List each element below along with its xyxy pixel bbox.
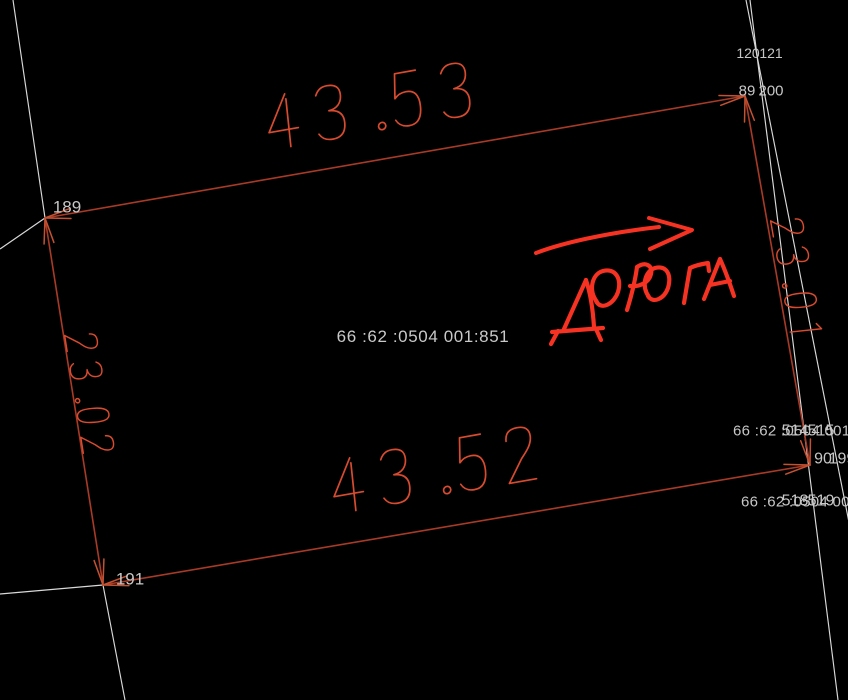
cadastral-quarter-line [750, 0, 838, 700]
point-number-label: 519 [808, 493, 835, 510]
point-number-label: 121 [759, 45, 783, 61]
point-number-label: 200 [758, 83, 783, 100]
cadastral-map-viewport: 66 :62 :0504 001:851 66 :62 :0504 00166 … [0, 0, 848, 700]
road-annotation-stroke [720, 259, 734, 296]
point-number-label: 189 [53, 198, 81, 217]
parcel-cadastral-number: 66 :62 :0504 001:851 [337, 327, 510, 346]
point-number-label: 514 [782, 423, 809, 440]
road-annotation-stroke [592, 270, 619, 305]
road-arrow [649, 218, 692, 249]
cadastral-quarter-line [0, 218, 45, 249]
cadastral-plan-canvas: 66 :62 :0504 001:851 66 :62 :0504 00166 … [0, 0, 848, 700]
point-number-label: 120 [736, 45, 760, 61]
point-number-label: 199 [829, 451, 848, 468]
road-annotation-stroke [684, 268, 690, 303]
dimension-arrowhead [44, 218, 45, 244]
road-annotation [536, 218, 734, 344]
dimension-arrowhead [45, 218, 71, 219]
road-annotation-stroke [690, 263, 709, 271]
dimension-label-top [262, 61, 475, 150]
point-number-label: 191 [116, 570, 144, 589]
road-annotation-stroke [564, 280, 586, 329]
dimension-label-bottom [327, 425, 541, 514]
dimension-label-right [771, 215, 822, 334]
dimension-arrowhead [103, 559, 104, 585]
road-annotation-stroke [596, 329, 601, 340]
point-number-label: 515 [808, 423, 835, 440]
cadastral-quarter-line [0, 585, 103, 594]
cadastral-quarter-line [13, 0, 45, 218]
point-number-label: 89 [739, 83, 756, 100]
road-annotation-stroke [627, 267, 637, 310]
dimension-arrowhead [784, 464, 810, 465]
road-annotation-stroke [645, 267, 669, 300]
cadastral-quarter-line [103, 585, 125, 700]
cadastral-quarter-line [746, 0, 848, 700]
road-arrow [536, 227, 659, 253]
point-number-label: 518 [782, 493, 809, 510]
